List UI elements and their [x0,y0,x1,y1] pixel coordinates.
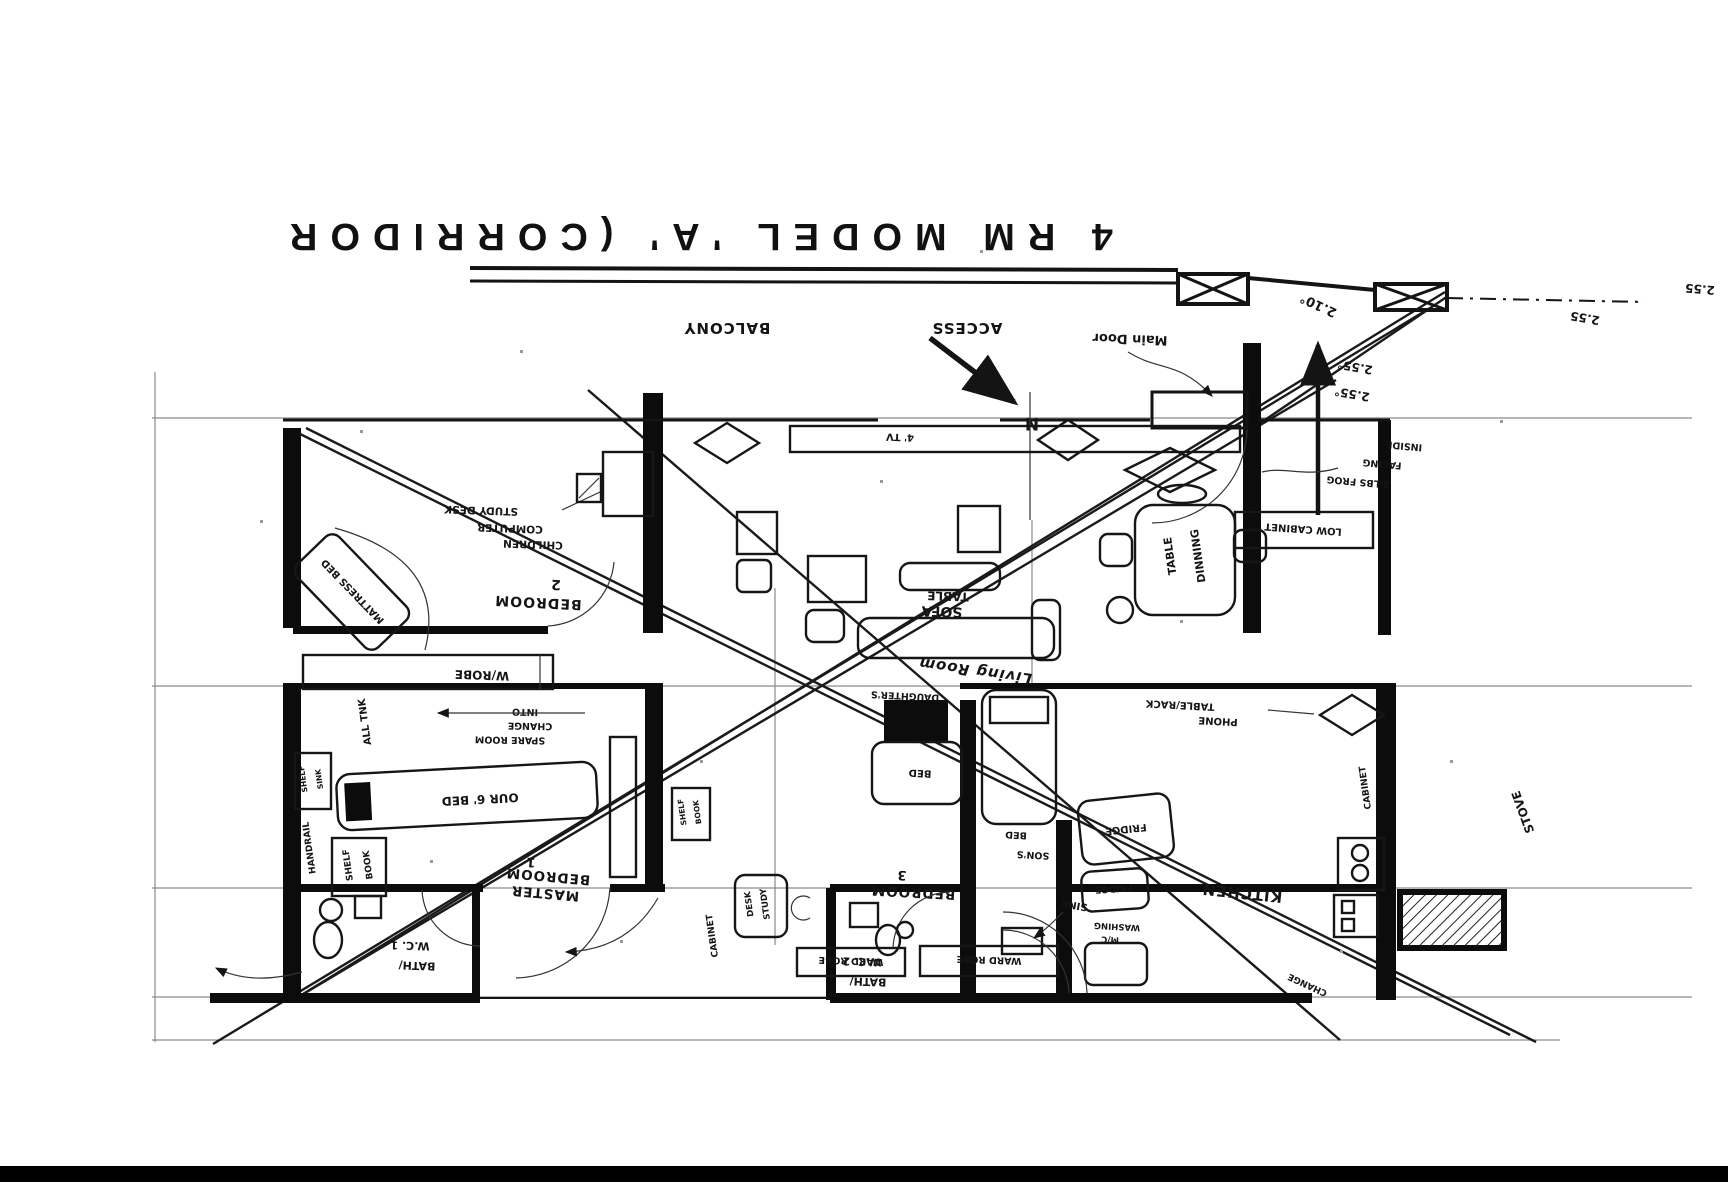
desk-note-line2: COMPUTER [477,521,543,535]
oven-hatched-box [1400,892,1504,948]
counter-box [1334,895,1378,937]
bath1-label2: W.C. 1 [390,938,430,952]
kitchen-door-arc [1003,912,1087,993]
main-door-leader [1128,352,1212,396]
desk-note-line3: CHILDREN [503,537,563,551]
bedroom2: MATTRESS BED BEDROOM 2 STUDY DESK COMPUT… [291,452,653,654]
book-shelf-label2: SHELF [342,848,356,881]
walls [210,343,1396,1003]
side-table [806,610,844,642]
sons-bed: BED SON'S [982,690,1056,861]
bedroom2-door-arc [548,562,614,626]
speaker-diamond [695,423,759,463]
toilet-tank [320,899,342,921]
dining-table-label2: TABLE [1161,536,1179,576]
living-room: 4' TV TABLE SOFA Living Room [695,420,1240,688]
floor-plan-canvas: 4 RM MODEL 'A' (CORRIDOR [0,0,1728,1182]
daughters-bed-label2: BED [908,766,931,778]
handrail-label: HANDRAIL [301,821,318,875]
small-book-shelf: BOOK SHELF [672,788,710,840]
phone-rack-label2: PHONE [1198,714,1238,727]
balcony-edge [470,268,1645,310]
bedroom2-label: BEDROOM [494,592,582,613]
wardrobe-label: W/ROBE [455,667,510,683]
washing-label1: WASHING [1094,920,1141,932]
main-door-label: Main Door [1092,330,1168,348]
double-bed-label: OUR 6' BED [441,790,519,808]
sink-shelf-label1: SINK [313,767,325,790]
plan-title: 4 RM MODEL 'A' (CORRIDOR [277,215,1113,257]
living-room-label: Living Room [917,654,1033,688]
window-x-icon [1178,274,1248,304]
washing-machine: WASHING M/C [1085,920,1147,985]
spare-room-note: INTO CHANGE SPARE ROOM [438,706,585,746]
wall-note-leader [1262,468,1338,472]
dining-table-label1: DINNING [1188,528,1208,583]
main-door [1152,392,1247,523]
fridge1-label: FRIDGE [1104,821,1147,836]
small-shelf-label1: BOOK [691,798,703,824]
spare-note-line3: SPARE ROOM [475,733,546,745]
bedroom3-number: 3 [897,867,907,882]
armchair-hatched [958,506,1000,552]
armchair-hatched [808,556,866,602]
tank-label: ALL TNK [357,697,375,746]
scan-edge-bar [0,1166,1728,1182]
dim-255-a: 2.55° [1336,357,1373,377]
phone-rack-label1: TABLE/RACK [1144,697,1215,712]
book-shelf-label1: BOOK [362,849,376,880]
washing-label2: M/C [1101,934,1119,945]
swing-arrow [566,898,658,952]
wardrobe-box: WARD ROBE [920,946,1058,976]
low-cabinet-label: LOW CABINET [1264,520,1342,536]
wash-basin [355,896,381,918]
wall-note-line2: FACING [1362,456,1402,470]
dim-255-mid: 2.55 [1569,309,1601,328]
wall-note-line1: INSIDE [1386,438,1423,452]
side-table [737,560,771,592]
kitchen-cabinet-label: CABINET [1358,765,1374,810]
dining-chair [1158,485,1206,503]
stove-label: STOVE [1509,789,1537,835]
bearing-label: 2.10° [1298,290,1339,320]
wash-basin [850,903,878,927]
bedroom3-cabinet-label: CABINET [705,913,721,958]
bath2-label2: W.C. 2 [842,954,882,968]
phone-leader [1268,710,1314,714]
sons-bed-label1: BED [1005,828,1027,840]
toilet-bowl [876,925,900,955]
kitchen-label: KITCHEN [1201,880,1283,906]
fridge2-label: FRIDGE [1095,882,1133,895]
desk-chair [791,896,810,920]
mattress-bed-label: MATTRESS BED [319,556,386,625]
dining-table: DINNING TABLE [1135,505,1235,615]
dim-255-b: 2.55° [1333,384,1370,404]
mattress-bed: MATTRESS BED [291,530,413,654]
dining-chair [1100,534,1132,566]
bath2-label1: BATH/ [848,974,886,988]
spare-note-line1: INTO [512,706,538,717]
access-label: ACCESS [932,319,1003,337]
desk-note-line1: STUDY DESK [443,503,518,518]
kitchen: KITCHEN FRIDGE FRIDGE WASHING M/C SINK C… [1002,765,1537,998]
sink-basin [1002,928,1042,954]
study-desk: STUDY DESK [735,875,810,937]
tall-cabinet [610,737,636,877]
toilet-bowl [314,922,342,958]
access-arrow [930,338,1014,402]
sofa-table-label: TABLE [927,588,969,603]
computer-desk [577,452,653,516]
balcony-label: BALCONY [683,319,770,337]
spare-note-line2: CHANGE [508,720,553,732]
bath1-door-arc [422,890,480,946]
dining-chair [1107,597,1133,623]
small-shelf-label2: SHELF [676,798,689,826]
daughters-bed-label1: DAUGHTER'S [870,688,939,703]
scanned-floor-plan-page: 4 RM MODEL 'A' (CORRIDOR [0,0,1728,1182]
phone-table-diamond [1320,695,1384,735]
daughters-bed: DAUGHTER'S BED [870,688,962,804]
study-desk-label1: STUDY [758,887,772,920]
tv-label: 4' TV [886,431,915,443]
bedroom2-number: 2 [551,576,562,592]
dining-area: LOW CABINET DINNING TABLE TABLE/RACK PHO… [1100,438,1423,735]
study-desk-label2: DESK [743,890,757,917]
master-number: 1 [526,854,536,870]
diagonal-construction-lines [213,292,1536,1044]
bath1-label1: BATH/ [397,958,435,972]
double-bed: OUR 6' BED [336,761,599,831]
dim-255-edge: 2.55 [1685,281,1716,298]
sons-bed-label2: SON'S [1016,848,1049,861]
north-label: N [1025,413,1039,433]
